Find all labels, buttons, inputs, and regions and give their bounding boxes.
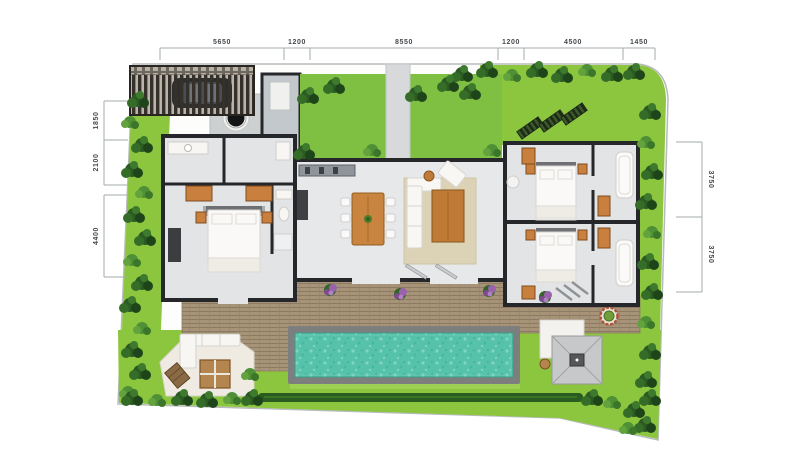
pool-water [295, 333, 513, 377]
nightstand [196, 212, 206, 223]
left-wing-bedroom [163, 136, 295, 304]
right-wing-bedrooms [505, 143, 638, 305]
dim-top-2: 1200 [288, 39, 306, 46]
sink [276, 190, 292, 199]
dim-top-5: 4500 [564, 39, 582, 46]
dim-top-1: 5650 [213, 39, 231, 46]
dimension-chain-right [676, 142, 702, 292]
shower [276, 142, 290, 160]
dresser [246, 186, 272, 201]
dim-right-2: 3750 [707, 246, 714, 264]
nightstand [262, 212, 272, 223]
dim-top-3: 8550 [395, 39, 413, 46]
wardrobe [522, 148, 535, 164]
dining-set [341, 193, 395, 245]
garden-ornament [601, 308, 618, 325]
sofa [407, 186, 422, 248]
dim-top-4: 1200 [502, 39, 520, 46]
toilet [279, 207, 289, 221]
entry-walkway [386, 64, 410, 160]
site-plan-svg: 5650 1200 8550 1200 4500 1450 1850 2100 … [0, 0, 800, 474]
dim-left-1: 1850 [93, 112, 100, 130]
living-dining-block [295, 160, 514, 284]
door-opening [218, 296, 248, 304]
carport-pergola [130, 66, 254, 115]
round-table [507, 176, 519, 188]
bathtub-2 [616, 240, 633, 286]
wardrobe [598, 228, 610, 248]
wood-ottoman-table [200, 360, 230, 388]
dimension-chain-top [160, 48, 655, 60]
side-table [540, 359, 550, 369]
tall-cabinet [297, 190, 308, 220]
dim-right-1: 3750 [707, 171, 714, 189]
dim-left-2: 2100 [93, 154, 100, 172]
wardrobe [522, 286, 535, 299]
shower-tray [274, 234, 292, 250]
wardrobe [168, 228, 181, 262]
round-side-table [424, 171, 434, 181]
floorplan-image: 5650 1200 8550 1200 4500 1450 1850 2100 … [0, 0, 800, 474]
pavilion-roof [552, 336, 602, 384]
outdoor-sofa-corner [180, 334, 196, 368]
dim-top-6: 1450 [630, 39, 648, 46]
dresser [186, 186, 212, 201]
wardrobe [598, 196, 610, 216]
dim-left-3: 4400 [93, 227, 100, 245]
bathtub-1 [616, 152, 633, 198]
swimming-pool [288, 326, 520, 384]
door-opening [352, 276, 400, 284]
